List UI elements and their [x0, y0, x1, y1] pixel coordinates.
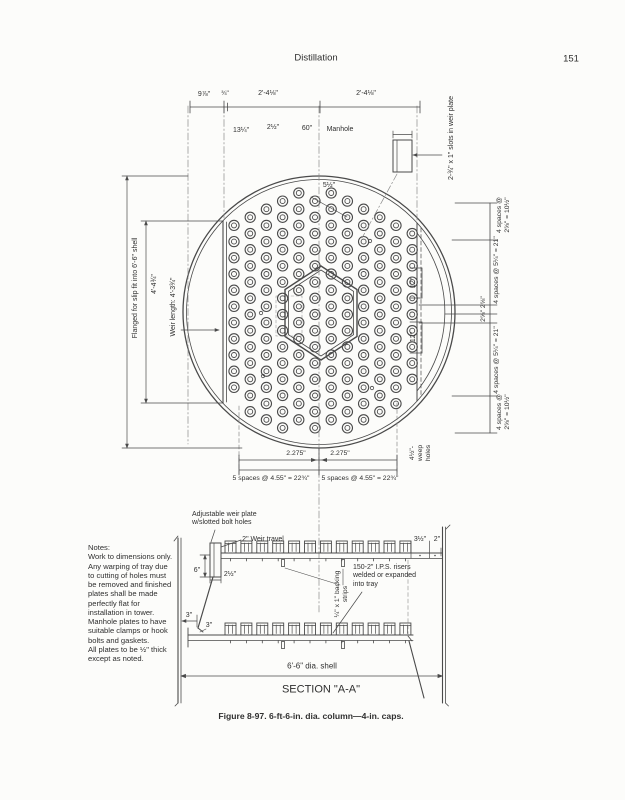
weir-length-label: Weir length: 4'-3¾" [170, 278, 178, 337]
section-title: SECTION "A-A" [282, 684, 360, 697]
shell-dia-label: 6'-6" dia. shell [287, 661, 337, 670]
figure-caption: Figure 8-97. 6-ft-6-in. dia. column—4-in… [218, 711, 403, 721]
slot-detail [393, 131, 442, 172]
spaces-middle: 2⅝" 2⅝" [480, 296, 488, 322]
flanged-note: Flanged for slip fit into 6'-6" shell [132, 238, 140, 339]
dim-2-4-18-right: 2'-4⅛" [356, 90, 376, 98]
dim-9-78: 9⅞" [198, 91, 210, 99]
spaces-top-large: 4 spaces @ 5¼" = 21" [493, 236, 501, 303]
dim-6: 6" [194, 567, 200, 575]
weir-travel-label: 2" Weir travel [242, 536, 284, 544]
manhole-label: Manhole [327, 126, 354, 134]
shell-walls [174, 525, 450, 706]
top-dimension-line [190, 101, 420, 113]
dim-2275-left: 2.275" [286, 450, 305, 458]
dim-3-12: 3½" [414, 536, 426, 544]
risers-label: 150-2" I.P.S. risers welded or expanded … [353, 564, 416, 589]
dim-60: 60" [302, 125, 312, 133]
spaces-bottom-right: 5 spaces @ 4.55" = 22¾" [322, 475, 399, 483]
dim-34: ¾" [221, 90, 229, 98]
notes-block: Notes: Work to dimensions only. Any warp… [88, 543, 198, 663]
spaces-bottom-large: 4 spaces @ 5¼" = 21" [493, 326, 501, 393]
dim-3-a: 3" [186, 612, 192, 620]
spaces-top-small: 4 spaces @ 2⅝" = 10½" [496, 197, 512, 233]
dim-2: 2" [434, 536, 440, 544]
dim-2-12-section: 2½" [224, 571, 236, 579]
bubble-cap-pattern [229, 188, 417, 433]
backing-strips-label: ¼" x 1" backing strips [334, 571, 350, 618]
dim-2-4-18-left: 2'-4⅛" [258, 90, 278, 98]
dim-4-4-34: 4'-4¾" [151, 274, 159, 294]
dim-13-14: 13¼" [233, 127, 249, 135]
section-view [174, 525, 450, 706]
book-page: Distillation 151 9⅞" ¾" 2'-4⅛" 2'-4⅛" 13… [0, 0, 625, 800]
weep-holes-label: 4½"- weep holes [409, 445, 433, 461]
dim-3-b: 3" [206, 622, 212, 630]
bottom-dimensions [239, 448, 397, 475]
tray-plan-view [122, 101, 497, 612]
page-number: 151 [563, 53, 579, 64]
dim-2-12: 2½" [267, 124, 279, 132]
dim-2275-right: 2.275" [330, 450, 349, 458]
slots-note: 2-¾" x 1" slots in weir plate [448, 96, 456, 180]
running-header: Distillation [294, 52, 337, 63]
spaces-bottom-left: 5 spaces @ 4.55" = 22¾" [233, 475, 310, 483]
spaces-bottom-small: 4 spaces @ 2⅝" = 10½" [496, 394, 512, 430]
engineering-drawing [0, 0, 625, 800]
dim-12-top: 12" [410, 278, 418, 288]
dim-12-bottom: 12" [410, 332, 418, 342]
dim-5-12: 5½" [323, 182, 335, 190]
adjustable-weir-label: Adjustable weir plate w/slotted bolt hol… [192, 511, 257, 528]
